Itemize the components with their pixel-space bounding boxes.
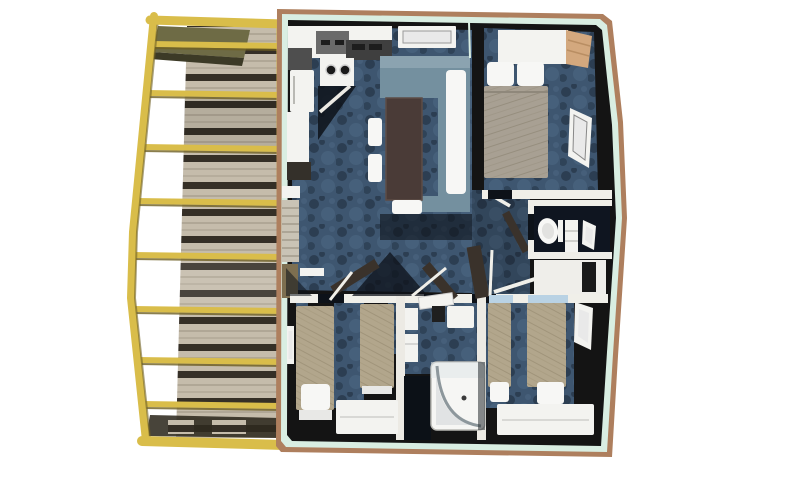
- headboard: [528, 295, 568, 303]
- water-heater: [447, 306, 474, 328]
- bench-cushion: [446, 70, 466, 194]
- range-hood: [316, 31, 349, 54]
- floorplan-render: [0, 0, 800, 480]
- module-joint: [469, 22, 470, 58]
- dining-table: [386, 98, 422, 200]
- deck-top-beam: [150, 20, 284, 24]
- master-door-gap: [488, 190, 512, 199]
- deck-lower-plank: [212, 420, 246, 434]
- shower-drain: [462, 396, 467, 401]
- table-shadow: [380, 214, 472, 240]
- chair: [368, 118, 382, 146]
- shower-dark-unit: [432, 306, 445, 322]
- pillow: [490, 382, 509, 402]
- chair: [368, 154, 382, 182]
- wardrobe-wood-end: [566, 30, 592, 68]
- bed-base: [362, 386, 392, 394]
- burner: [326, 65, 336, 75]
- wc-wall-top: [528, 200, 612, 206]
- pillow: [487, 62, 514, 86]
- single-bed-blanket: [488, 303, 511, 387]
- bench-slats: [282, 200, 299, 262]
- headboard: [489, 295, 513, 303]
- washbasin-cabinet: [405, 308, 418, 330]
- single-bed-blanket: [360, 304, 394, 388]
- pillow: [537, 382, 564, 404]
- bedroom-left-window-glass: [289, 331, 293, 359]
- door-swing: [490, 250, 492, 296]
- pillow: [301, 384, 330, 410]
- tall-cabinet: [287, 112, 309, 162]
- bed-base: [299, 410, 332, 420]
- closet-door-panel: [582, 262, 596, 292]
- sink-bowl: [369, 44, 382, 50]
- shower-floor-shadow: [404, 376, 431, 440]
- washbasin: [405, 334, 418, 362]
- deck-bay-light: [179, 255, 280, 309]
- kitchen-appliance: [288, 48, 312, 70]
- double-bed-duvet: [484, 86, 548, 178]
- bedroom-left-carpet: [334, 302, 364, 408]
- single-bed-blanket: [527, 303, 566, 387]
- deck-bay-shade: [184, 93, 280, 147]
- burner: [340, 65, 350, 75]
- wc-wall-bottom: [528, 252, 612, 259]
- floorplan-scene: [0, 0, 800, 480]
- deck-lower-plank: [168, 420, 194, 434]
- wardrobe: [498, 30, 568, 64]
- living-window-glass: [403, 31, 451, 43]
- hall-ledge: [300, 268, 324, 276]
- house: [276, 9, 627, 457]
- closet: [534, 260, 606, 294]
- hood-vent: [335, 40, 344, 45]
- pillow: [517, 62, 544, 86]
- sofa-back-top: [380, 56, 470, 68]
- wc-cabinet: [565, 220, 578, 252]
- bench-top: [282, 186, 300, 198]
- sink-bowl: [352, 44, 365, 50]
- deck-plank-floor: [176, 26, 280, 438]
- wc-door-gap: [528, 214, 534, 240]
- wc-room: [528, 200, 612, 259]
- cabinet-base: [287, 162, 311, 180]
- deck-bottom-beam: [142, 441, 284, 445]
- hood-vent: [321, 40, 330, 45]
- shower-edge-shadow: [478, 362, 485, 430]
- toilet-tank: [558, 220, 563, 242]
- end-chair: [392, 200, 422, 214]
